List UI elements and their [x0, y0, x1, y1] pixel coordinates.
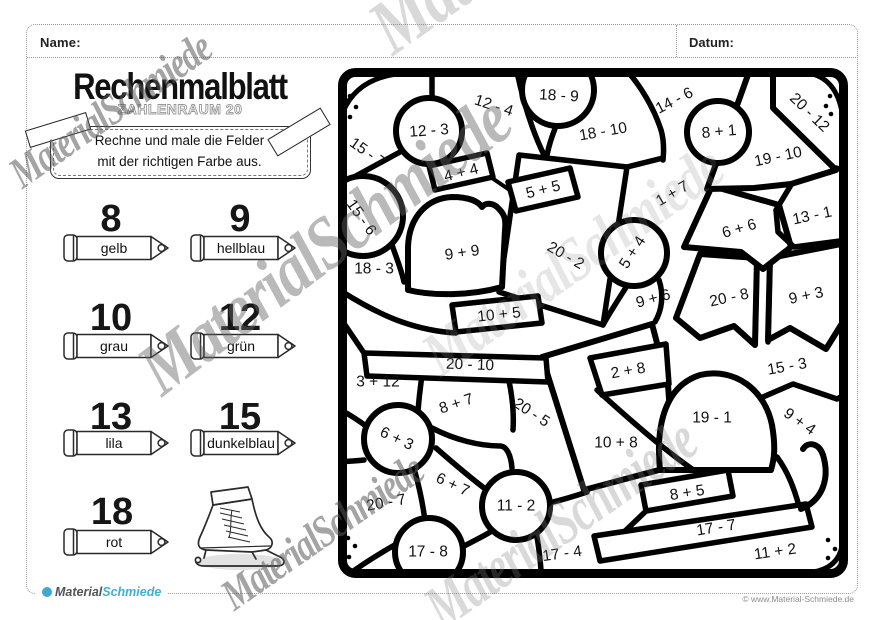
svg-text:18 - 9: 18 - 9: [539, 86, 579, 105]
svg-text:3 + 12: 3 + 12: [356, 373, 400, 390]
svg-text:20 - 5: 20 - 5: [510, 395, 553, 431]
svg-text:19 - 1: 19 - 1: [692, 409, 732, 426]
svg-text:13 - 1: 13 - 1: [791, 203, 833, 228]
svg-text:9 + 6: 9 + 6: [634, 286, 672, 311]
svg-text:14 - 6: 14 - 6: [653, 84, 696, 117]
svg-text:9 + 4: 9 + 4: [780, 405, 819, 439]
svg-text:17 - 8: 17 - 8: [408, 543, 448, 560]
svg-text:11 + 2: 11 + 2: [753, 541, 797, 564]
svg-text:8 + 7: 8 + 7: [437, 390, 475, 417]
svg-text:18 - 10: 18 - 10: [578, 119, 629, 144]
svg-text:15 - 3: 15 - 3: [766, 355, 808, 379]
svg-text:8 + 1: 8 + 1: [701, 122, 737, 142]
